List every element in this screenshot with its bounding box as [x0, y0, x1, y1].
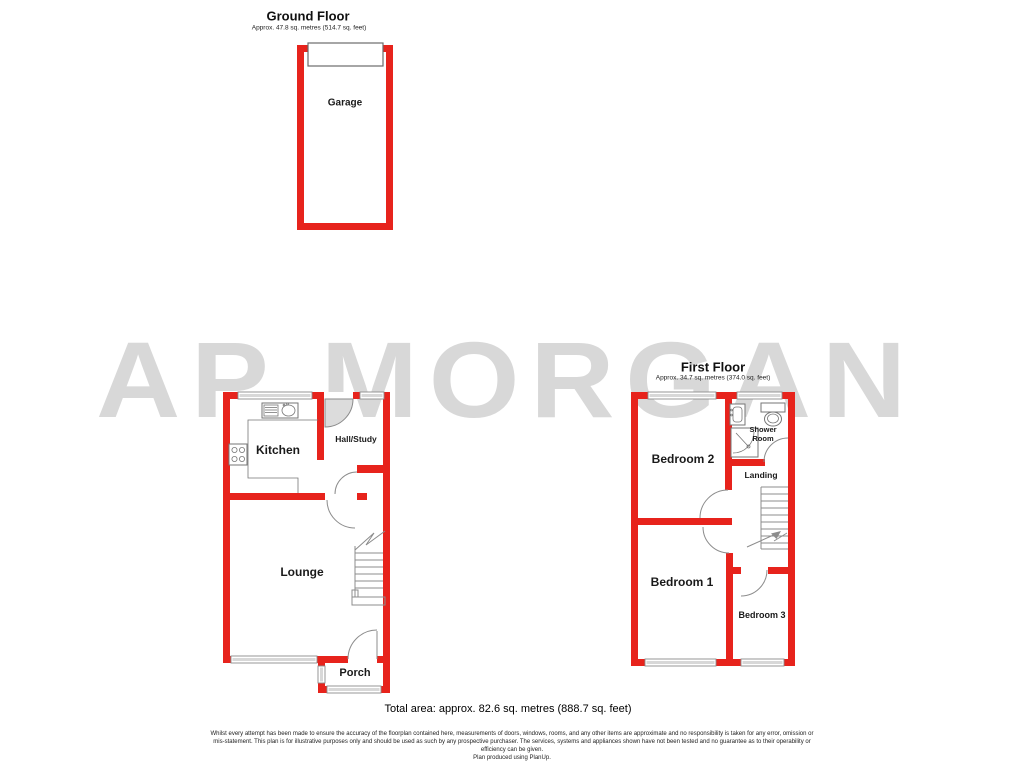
kitchen-hob [229, 444, 247, 465]
floorplan-page: AP MORGAN [0, 0, 1024, 768]
floorplan-drawing [0, 0, 1024, 768]
hall-lounge-door-arc [327, 500, 355, 528]
porch-label: Porch [339, 667, 370, 679]
bedroom1-label: Bedroom 1 [651, 575, 714, 589]
bedroom3-door-arc [741, 570, 767, 596]
bedroom3-label: Bedroom 3 [738, 610, 785, 620]
bedroom2-label: Bedroom 2 [652, 452, 715, 466]
hall-corridor-door-arc [335, 472, 357, 494]
ground-floor-title: Ground Floor [266, 9, 349, 24]
first-floor-stairs [747, 487, 788, 549]
disclaimer-line-3: efficiency can be given. [0, 747, 1024, 753]
garage-plan [297, 43, 393, 230]
bedroom3-window [741, 659, 784, 666]
shower-room-window [737, 392, 782, 399]
garage-door [308, 43, 383, 66]
garage-label: Garage [328, 98, 362, 109]
total-area-text: Total area: approx. 82.6 sq. metres (888… [384, 703, 631, 715]
porch-door-arc [348, 630, 377, 659]
basin [730, 404, 745, 425]
plan-credit: Plan produced using PlanUp. [0, 755, 1024, 761]
kitchen-label: Kitchen [256, 443, 300, 457]
lounge-label: Lounge [280, 565, 323, 579]
bedroom2-window [648, 392, 716, 399]
kitchen-window [238, 392, 312, 399]
landing-label: Landing [744, 470, 777, 480]
kitchen-sink [262, 403, 298, 418]
ground-stairs [352, 531, 385, 605]
hall-study-label: Hall/Study [335, 434, 377, 444]
first-floor-title: First Floor [681, 360, 745, 375]
bedroom1-window [645, 659, 716, 666]
ground-floor-subtitle: Approx. 47.8 sq. metres (514.7 sq. feet) [252, 25, 367, 32]
toilet [761, 403, 785, 426]
bedroom1-door-arc [703, 527, 729, 553]
shower-room-label: Shower Room [740, 426, 786, 444]
disclaimer-line-1: Whilst every attempt has been made to en… [0, 731, 1024, 737]
porch-window [327, 686, 381, 693]
hall-window [360, 392, 384, 399]
bedroom2-door-arc [700, 490, 728, 518]
lounge-window [231, 656, 317, 663]
front-door [325, 399, 353, 427]
porch-side-window [318, 666, 325, 683]
disclaimer-line-2: mis-statement. This plan is for illustra… [0, 739, 1024, 745]
first-floor-subtitle: Approx. 34.7 sq. metres (374.0 sq. feet) [656, 375, 771, 382]
